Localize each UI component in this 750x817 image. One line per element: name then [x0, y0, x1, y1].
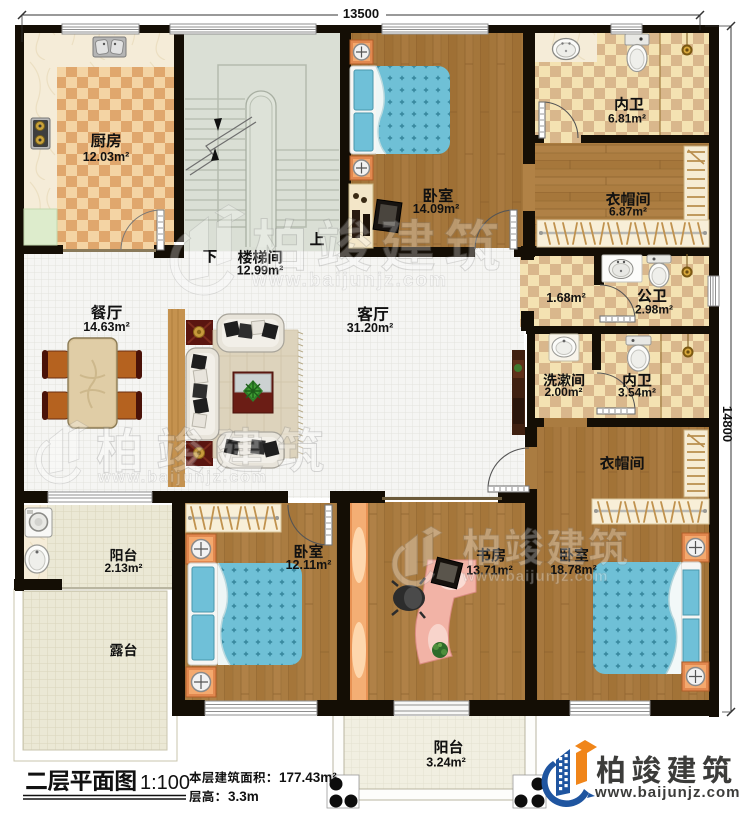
- svg-text:177.43m²: 177.43m²: [279, 770, 337, 785]
- svg-text:www.baijunjz.com: www.baijunjz.com: [97, 469, 268, 486]
- svg-text:14.63m²: 14.63m²: [83, 320, 130, 334]
- svg-text:2.13m²: 2.13m²: [104, 561, 142, 575]
- svg-text:12.03m²: 12.03m²: [83, 150, 130, 164]
- svg-text:12.11m²: 12.11m²: [286, 558, 332, 572]
- svg-text:www.baijunjz.com: www.baijunjz.com: [251, 270, 448, 291]
- svg-text:1.68m²: 1.68m²: [546, 291, 586, 305]
- svg-text:6.81m²: 6.81m²: [608, 112, 646, 126]
- svg-text:2.00m²: 2.00m²: [544, 385, 582, 399]
- svg-text:3.54m²: 3.54m²: [618, 386, 656, 400]
- svg-text:14.09m²: 14.09m²: [413, 202, 460, 216]
- svg-text:6.87m²: 6.87m²: [609, 205, 647, 219]
- svg-text:14800: 14800: [720, 406, 735, 442]
- svg-text:3.24m²: 3.24m²: [426, 756, 466, 770]
- svg-text:2.98m²: 2.98m²: [635, 303, 673, 317]
- svg-text:www.baijunjz.com: www.baijunjz.com: [594, 784, 740, 801]
- svg-text:3.3m: 3.3m: [228, 789, 259, 804]
- svg-text:31.20m²: 31.20m²: [347, 321, 394, 335]
- svg-text:1:100: 1:100: [140, 772, 190, 794]
- svg-text:13500: 13500: [343, 6, 379, 21]
- svg-text:www.baijunjz.com: www.baijunjz.com: [462, 568, 608, 585]
